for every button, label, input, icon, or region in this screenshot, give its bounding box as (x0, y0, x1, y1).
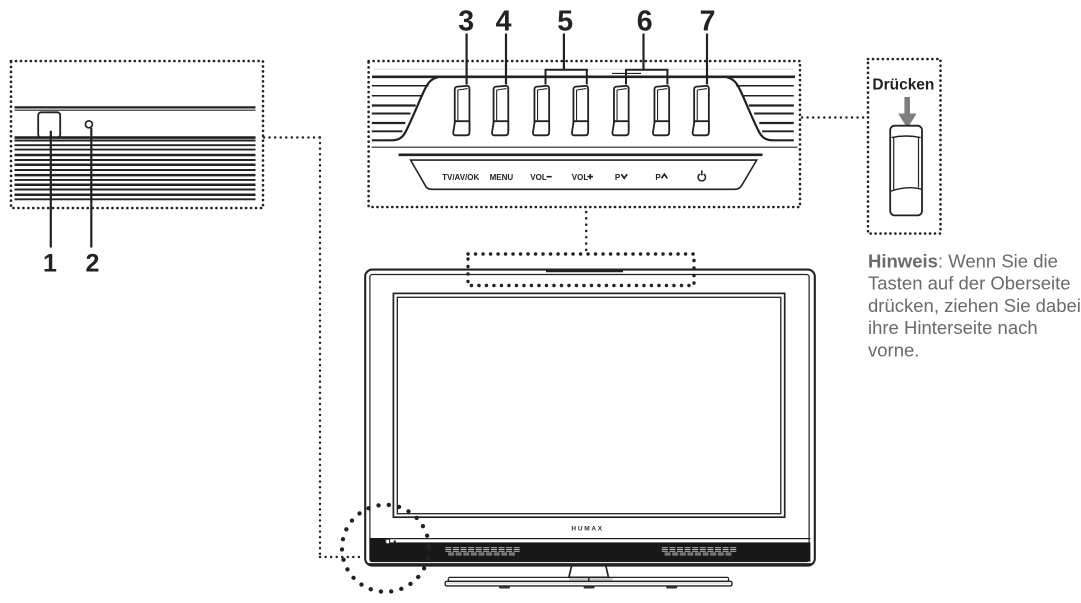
svg-text:TV/AV/OK: TV/AV/OK (442, 173, 479, 182)
svg-text:Tasten auf der Oberseite: Tasten auf der Oberseite (868, 273, 1071, 294)
svg-text:P: P (615, 173, 621, 182)
svg-text:drücken, ziehen Sie dabei: drücken, ziehen Sie dabei (868, 295, 1081, 316)
svg-text:2: 2 (86, 249, 100, 277)
svg-text:3: 3 (458, 6, 474, 38)
svg-text:P: P (655, 173, 661, 182)
svg-text:vorne.: vorne. (868, 339, 919, 360)
svg-text:4: 4 (496, 6, 512, 38)
svg-text:Drücken: Drücken (872, 77, 934, 94)
svg-text:VOL: VOL (530, 173, 547, 182)
svg-text:ihre Hinterseite nach: ihre Hinterseite nach (868, 317, 1038, 338)
svg-text:1: 1 (43, 249, 57, 277)
svg-text:5: 5 (557, 6, 573, 38)
svg-text:VOL: VOL (572, 173, 589, 182)
svg-text:HUMAX: HUMAX (571, 526, 603, 533)
svg-text:Hinweis: Wenn Sie die: Hinweis: Wenn Sie die (868, 251, 1058, 272)
svg-text:6: 6 (637, 6, 653, 38)
svg-text:MENU: MENU (490, 173, 514, 182)
svg-text:7: 7 (700, 6, 716, 38)
